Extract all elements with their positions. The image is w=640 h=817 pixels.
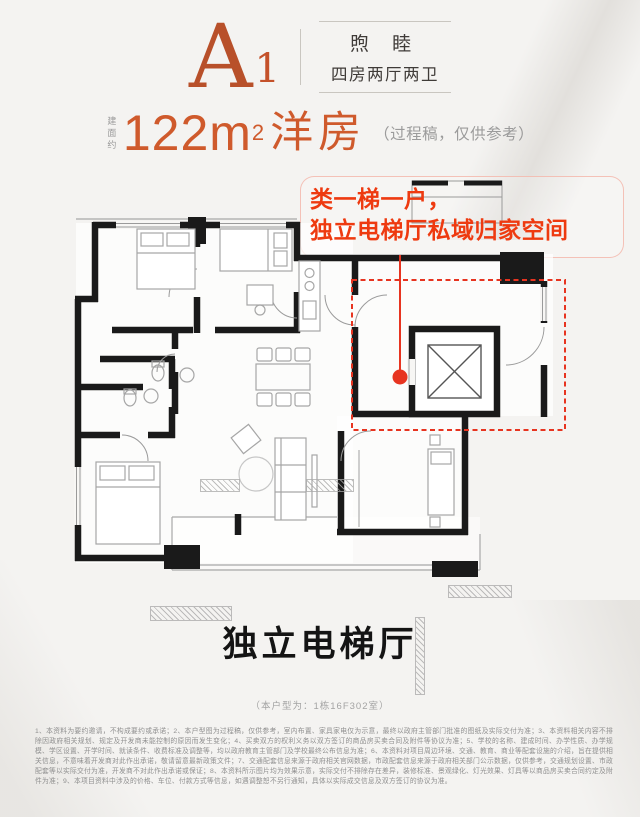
cabinet-hatch bbox=[448, 585, 512, 598]
plan-caption: 独立电梯厅 bbox=[0, 616, 640, 667]
plan-name-block: 煦 睦 四房两厅两卫 bbox=[319, 21, 451, 93]
area-line: 建面约 122m 2 洋房 （过程稿，仅供参考） bbox=[0, 108, 640, 158]
callout-line2: 独立电梯厅私域归家空间 bbox=[310, 215, 630, 246]
plan-header: A 1 煦 睦 四房两厅两卫 bbox=[0, 18, 640, 95]
master-bed bbox=[96, 462, 160, 544]
area-note: （过程稿，仅供参考） bbox=[374, 122, 534, 144]
bed-bottom-right bbox=[428, 435, 454, 527]
area-prefix-vertical: 建面约 bbox=[106, 115, 118, 151]
bed-top-left bbox=[137, 229, 195, 289]
header-divider bbox=[300, 29, 301, 85]
red-dot-marker bbox=[393, 370, 408, 385]
bed-top-second bbox=[220, 229, 292, 271]
elevator-shaft bbox=[407, 329, 497, 414]
kitchen-counter bbox=[299, 261, 320, 331]
plan-index: 1 bbox=[255, 49, 280, 89]
callout-line1: 类一梯一户， bbox=[310, 184, 630, 215]
area-value: 122m bbox=[123, 108, 252, 158]
plan-room-layout: 四房两厅两卫 bbox=[331, 61, 439, 85]
wardrobe-hatch bbox=[200, 479, 240, 492]
area-superscript: 2 bbox=[252, 122, 264, 144]
wardrobe-hatch bbox=[306, 479, 354, 492]
plan-letter: A bbox=[189, 18, 253, 95]
sofa bbox=[275, 438, 306, 520]
plan-name: 煦 睦 bbox=[331, 29, 439, 56]
elevator-callout: 类一梯一户， 独立电梯厅私域归家空间 bbox=[310, 184, 630, 246]
legal-disclaimer: 1、本资料为要约邀请，不构成要约或承诺；2、本户型图为过程稿，仅供参考，室内布置… bbox=[35, 727, 613, 787]
area-type: 洋房 bbox=[270, 112, 366, 155]
floorplan-poster: { "palette": { "accent_serif": "#b8502a"… bbox=[0, 0, 640, 817]
unit-note: （本户型为：1栋16F302室） bbox=[0, 698, 640, 712]
